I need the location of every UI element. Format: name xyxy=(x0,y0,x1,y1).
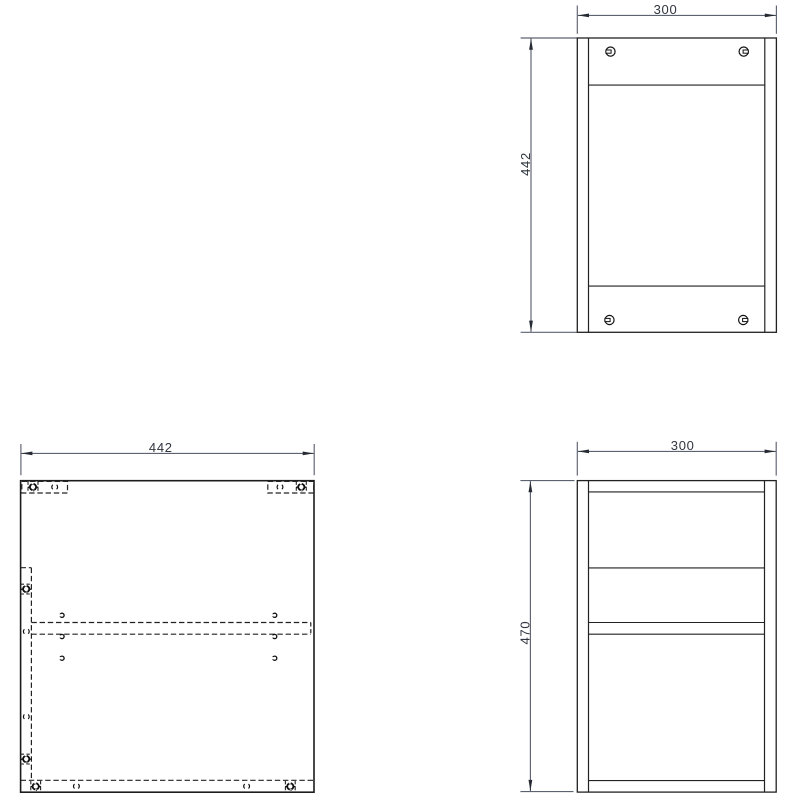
svg-text:300: 300 xyxy=(671,438,695,453)
svg-text:470: 470 xyxy=(518,621,533,645)
svg-text:442: 442 xyxy=(149,440,173,455)
svg-text:300: 300 xyxy=(654,2,678,17)
svg-text:442: 442 xyxy=(518,152,533,176)
